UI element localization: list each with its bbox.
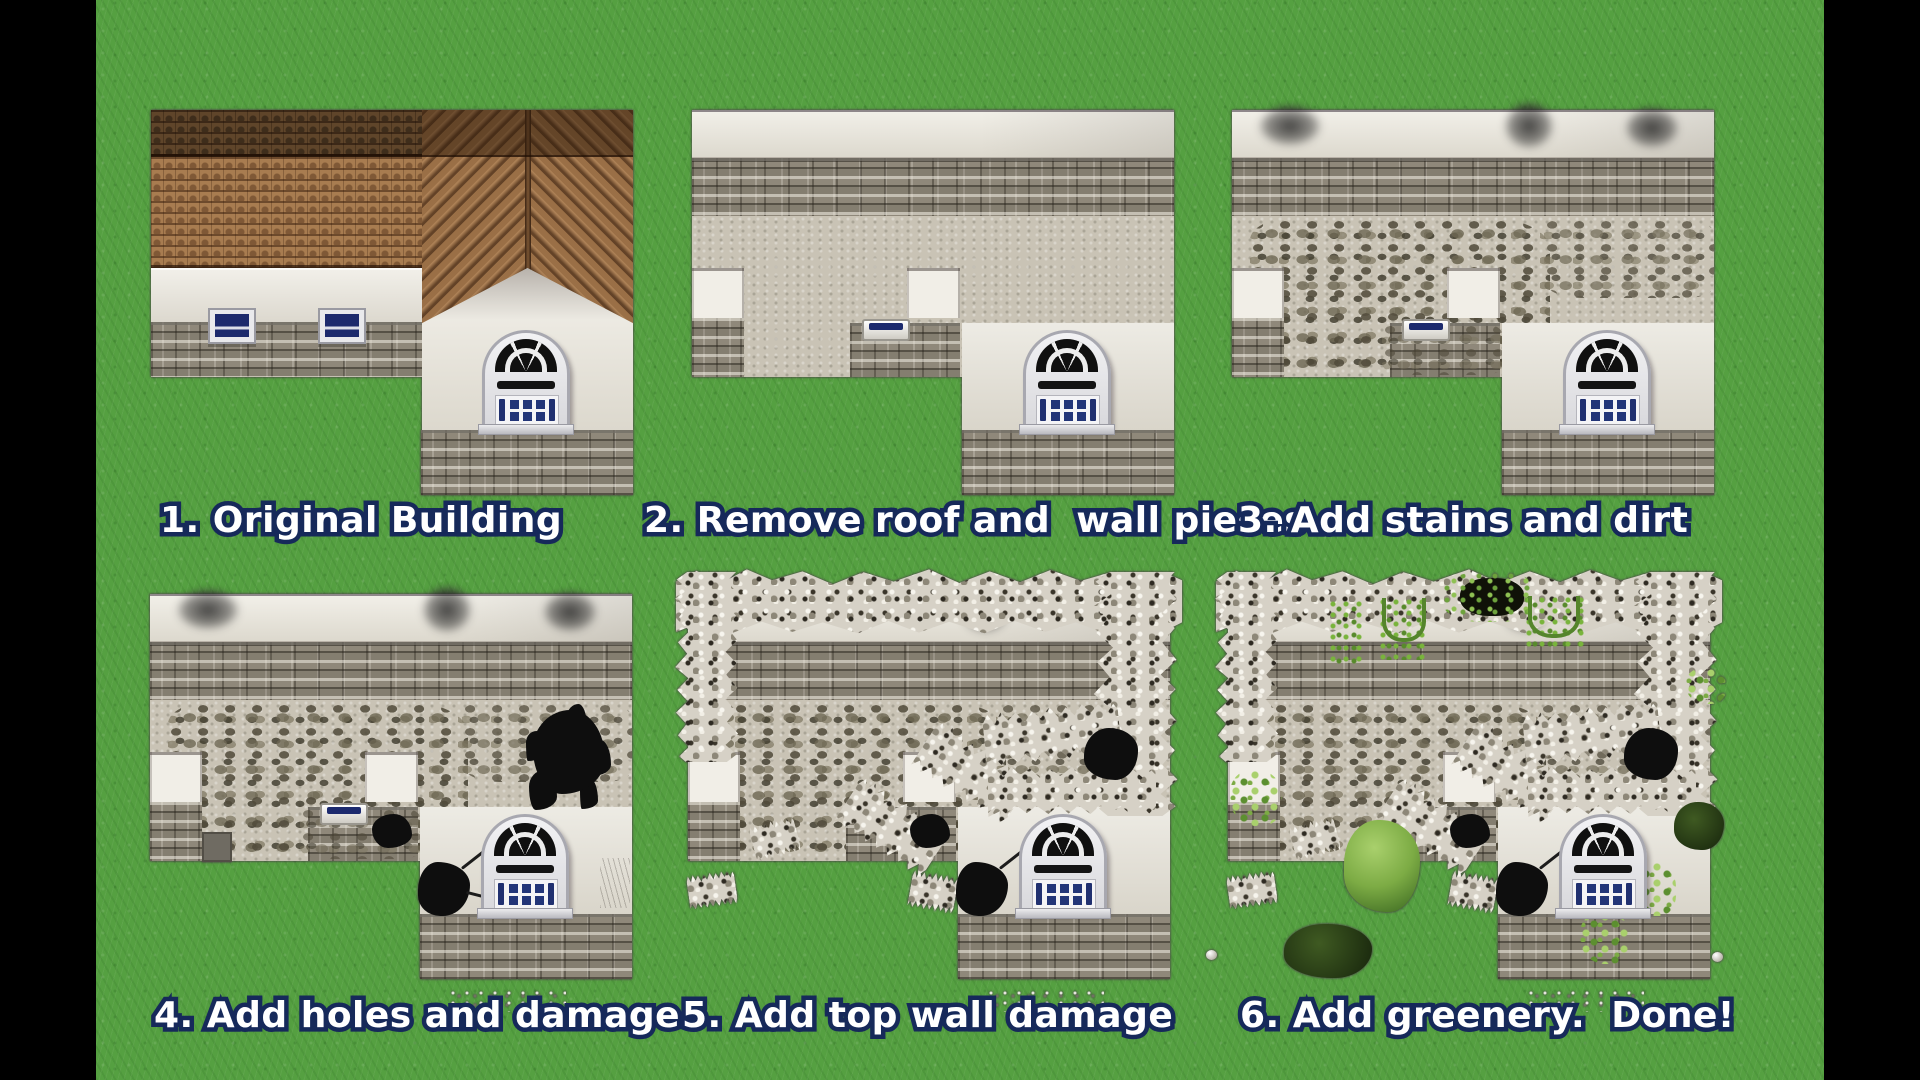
letterbox-right: [1824, 0, 1920, 1080]
stone-foundation-piece: [150, 802, 202, 861]
window-pane-bar: [1626, 883, 1632, 905]
step-panel-2-roof-removed: [692, 110, 1174, 495]
stone-foundation-piece: [1232, 318, 1284, 377]
white-wall-band: [151, 268, 422, 322]
soot-smudge: [164, 582, 252, 638]
wall-cutout: [692, 268, 744, 318]
window-pane: [509, 884, 518, 893]
window-base-sill: [1015, 908, 1111, 919]
arched-window: [1019, 814, 1107, 914]
dark-bush: [1284, 924, 1372, 978]
window-pane: [536, 400, 545, 409]
window-pane-bar: [1036, 883, 1042, 905]
window-transom: [1034, 865, 1092, 873]
stone-foundation: [151, 322, 422, 377]
window-pane: [522, 884, 531, 893]
rubble-pile: [1447, 868, 1499, 915]
soot-smudge: [532, 584, 608, 640]
ink-splat-hole: [533, 710, 605, 794]
stone-foundation-piece: [692, 318, 744, 377]
step-panel-4-holes-added: [150, 594, 632, 979]
step-panel-3-stains-added: [1232, 110, 1714, 495]
window-pane: [1591, 412, 1600, 421]
wall-cutout: [150, 752, 202, 802]
pebble: [1206, 950, 1217, 960]
wall-cutout: [907, 268, 960, 318]
window-transom: [497, 381, 555, 389]
fanlight-icon: [494, 823, 556, 856]
grey-rubble-block: [202, 832, 232, 862]
soot-smudge: [1494, 94, 1564, 158]
window-pane: [523, 412, 532, 421]
arched-window: [481, 814, 569, 914]
fanlight-icon: [495, 339, 557, 372]
window-pane: [522, 896, 531, 905]
pebble: [1712, 952, 1723, 962]
sapling: [1230, 770, 1282, 826]
window-pane-bar: [499, 399, 505, 421]
gable-stone-foundation: [962, 430, 1174, 495]
window-pane: [1073, 896, 1082, 905]
roof-dark-ridge-row-right: [422, 110, 633, 157]
window-panes: [1032, 879, 1096, 909]
stone-wall-band: [150, 642, 632, 700]
step-panel-1-original-building: [151, 110, 633, 495]
window-panes: [495, 395, 559, 425]
window-pane-bar: [498, 883, 504, 905]
arched-window: [1559, 814, 1647, 914]
black-hole: [1624, 728, 1678, 780]
window-pane-bar: [1040, 399, 1046, 421]
window-pane: [1064, 412, 1073, 421]
window-transom: [1038, 381, 1096, 389]
window-pane: [1591, 400, 1600, 409]
window-base-sill: [1019, 424, 1115, 435]
top-wall-cap: [692, 110, 1174, 158]
window-pane: [535, 884, 544, 893]
stone-foundation-piece: [688, 802, 740, 861]
window-sill: [1402, 319, 1450, 341]
window-pane-bar: [548, 883, 554, 905]
window-transom: [1578, 381, 1636, 389]
window-pane: [536, 412, 545, 421]
window-base-sill: [477, 908, 573, 919]
roof-tile-texture: [151, 157, 422, 268]
rubble-pile: [686, 869, 739, 911]
arched-window: [482, 330, 570, 430]
panel-caption-6: 6. Add greenery. Done!: [1240, 995, 1735, 1036]
fanlight-icon: [1032, 823, 1094, 856]
window-panes: [1572, 879, 1636, 909]
window-base-sill: [478, 424, 574, 435]
step-panel-5-rubble-added: [688, 594, 1170, 979]
panel-caption-1: 1. Original Building: [160, 500, 562, 541]
wall-cutout: [365, 752, 418, 802]
roof-dark-ridge-row: [151, 110, 422, 157]
window-pane: [1604, 400, 1613, 409]
grass-background: 1. Original Building 2. Remove roof and …: [96, 0, 1824, 1080]
black-hole: [372, 814, 412, 848]
window-pane: [1617, 412, 1626, 421]
small-window: [208, 308, 256, 344]
black-hole: [910, 814, 950, 848]
soot-smudge: [412, 578, 482, 642]
window-pane: [1604, 412, 1613, 421]
step-panel-6-greenery-added: [1228, 594, 1710, 979]
window-pane-bar: [1086, 883, 1092, 905]
window-pane: [1613, 896, 1622, 905]
shrub: [1686, 668, 1726, 704]
window-panes: [494, 879, 558, 909]
black-hole: [1084, 728, 1138, 780]
window-pane-bar: [1580, 399, 1586, 421]
soot-smudge: [1614, 100, 1690, 156]
window-pane: [510, 412, 519, 421]
window-pane: [1047, 896, 1056, 905]
panel-caption-3: 3. Add stains and dirt: [1238, 500, 1688, 541]
bush: [1344, 820, 1420, 912]
window-pane-bar: [1630, 399, 1636, 421]
window-pane: [1051, 412, 1060, 421]
window-pane: [1617, 400, 1626, 409]
window-pane: [1073, 884, 1082, 893]
wall-cutout: [1232, 268, 1284, 318]
window-pane: [510, 400, 519, 409]
fanlight-icon: [1576, 339, 1638, 372]
window-panes: [1576, 395, 1640, 425]
panel-caption-5: 5. Add top wall damage: [682, 995, 1173, 1036]
rubble-pile: [907, 868, 959, 915]
window-pane-bar: [1576, 883, 1582, 905]
window-sill: [320, 803, 368, 825]
window-pane-bar: [1090, 399, 1096, 421]
letterbox-left: [0, 0, 96, 1080]
window-pane: [1587, 896, 1596, 905]
dark-bush: [1674, 802, 1724, 850]
window-pane-bar: [549, 399, 555, 421]
soot-smudge: [1246, 98, 1334, 154]
window-pane: [509, 896, 518, 905]
window-pane: [1077, 400, 1086, 409]
hanging-vine: [1524, 596, 1584, 650]
shrub: [1580, 912, 1630, 964]
window-pane: [1600, 884, 1609, 893]
window-pane: [1600, 896, 1609, 905]
gable-stone-foundation: [1502, 430, 1714, 495]
window-pane: [1060, 884, 1069, 893]
rubble-pile: [1226, 869, 1279, 911]
stone-wall-band: [1232, 158, 1714, 216]
window-base-sill: [1555, 908, 1651, 919]
gable-stone-foundation: [420, 914, 632, 979]
arched-window: [1023, 330, 1111, 430]
window-pane: [1613, 884, 1622, 893]
window-pane: [1077, 412, 1086, 421]
window-pane: [523, 400, 532, 409]
lichen-stain: [1544, 218, 1714, 298]
window-pane: [535, 896, 544, 905]
window-pane: [1060, 896, 1069, 905]
arched-window: [1563, 330, 1651, 430]
fanlight-icon: [1572, 823, 1634, 856]
window-pane: [1587, 884, 1596, 893]
window-pane: [1064, 400, 1073, 409]
panel-caption-4: 4. Add holes and damage: [154, 995, 680, 1036]
window-panes: [1036, 395, 1100, 425]
hanging-vine: [1378, 598, 1430, 660]
stone-wall-band: [692, 158, 1174, 216]
fanlight-icon: [1036, 339, 1098, 372]
small-window: [318, 308, 366, 344]
wall-cutout: [1447, 268, 1500, 318]
gable-stone-foundation: [421, 430, 633, 495]
window-pane: [1051, 400, 1060, 409]
window-base-sill: [1559, 424, 1655, 435]
black-hole: [1450, 814, 1490, 848]
panel-caption-2: 2. Remove roof and wall pieces: [644, 500, 1306, 541]
window-transom: [1574, 865, 1632, 873]
window-sill: [862, 319, 910, 341]
scratch-marks: [600, 858, 630, 908]
gable-stone-foundation: [958, 914, 1170, 979]
window-pane: [1047, 884, 1056, 893]
hanging-vine: [1328, 600, 1362, 666]
window-transom: [496, 865, 554, 873]
